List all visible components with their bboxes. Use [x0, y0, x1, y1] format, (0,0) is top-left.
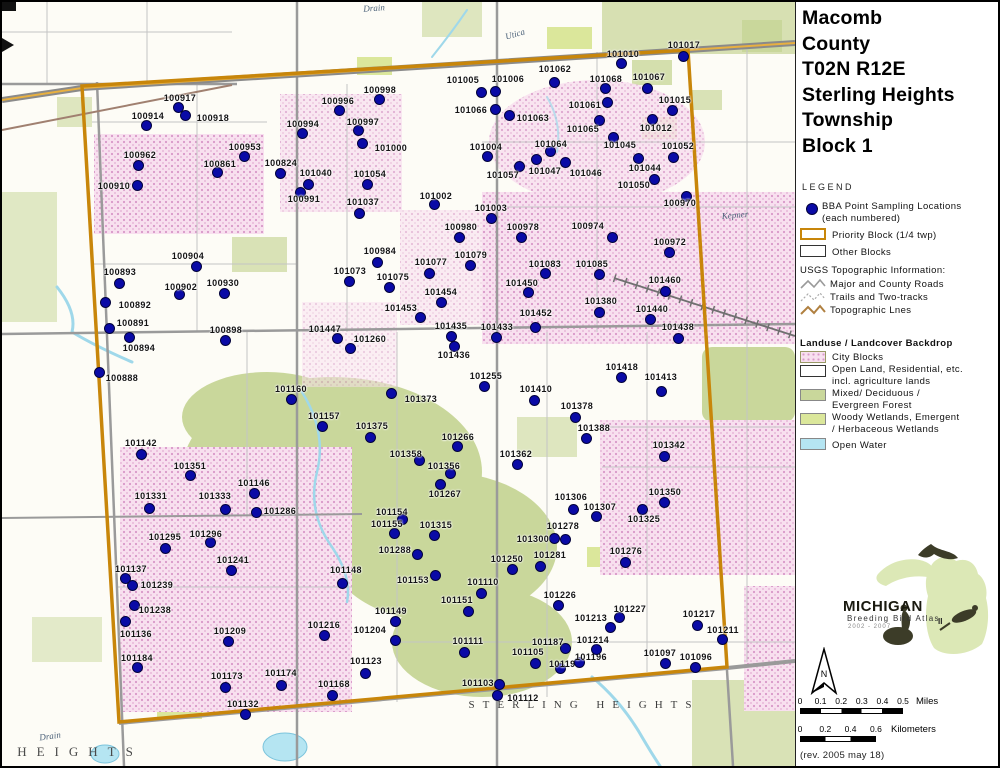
bba-point-dot — [362, 179, 373, 190]
bba-point-label: 100991 — [288, 194, 320, 204]
bba-point-label: 101112 — [507, 693, 538, 703]
bba-point-label: 100970 — [664, 198, 696, 208]
legend-priority-label: Priority Block (1/4 twp) — [832, 230, 937, 242]
bba-point-label: 101413 — [645, 372, 677, 382]
bba-point-label: 101146 — [238, 478, 270, 488]
bba-point-dot — [463, 606, 474, 617]
bba-point-label: 101045 — [604, 140, 636, 150]
bba-point-dot — [144, 503, 155, 514]
bba-point-dot — [226, 565, 237, 576]
bba-point-dot — [504, 110, 515, 121]
bba-point-dot — [136, 449, 147, 460]
scale-tick-label: 0.2 — [835, 696, 847, 706]
bba-point-label: 101216 — [308, 620, 340, 630]
bba-point-label: 101238 — [139, 605, 171, 615]
miles-scale-bar — [800, 708, 903, 714]
bba-point-label: 101450 — [506, 278, 538, 288]
bba-point-dot — [374, 94, 385, 105]
bba-point-label: 100894 — [123, 343, 155, 353]
bba-point-dot — [372, 257, 383, 268]
bba-point-dot — [389, 528, 400, 539]
bba-point-label: 101184 — [121, 653, 153, 663]
bba-point-label: 100980 — [445, 222, 477, 232]
bba-point-dot — [523, 287, 534, 298]
bba-point-label: 101157 — [308, 411, 340, 421]
bba-point-label: 101068 — [590, 74, 622, 84]
bba-point-label: 101433 — [481, 322, 513, 332]
bba-point-label: 100888 — [106, 373, 138, 383]
bba-point-dot — [594, 307, 605, 318]
bba-point-dot — [667, 105, 678, 116]
bba-point-label: 101017 — [668, 40, 700, 50]
bba-point-dot — [120, 573, 131, 584]
bba-point-label: 101373 — [405, 394, 437, 404]
bba-point-label: 101214 — [577, 635, 609, 645]
bba-point-label: 101054 — [354, 169, 386, 179]
topo-lines-icon — [800, 304, 826, 316]
priority-block-swatch — [800, 228, 826, 240]
bba-point-label: 101003 — [475, 203, 507, 213]
legend-open-land: Open Land, Residential, etc. incl. agric… — [832, 364, 963, 387]
pond — [263, 733, 307, 761]
bba-point-dot — [180, 110, 191, 121]
north-arrow: N — [806, 647, 842, 697]
bba-point-dot — [530, 322, 541, 333]
bba-point-label: 100861 — [204, 159, 236, 169]
bba-point-dot — [240, 709, 251, 720]
bba-point-label: 101153 — [397, 575, 429, 585]
bba-point-label: 101447 — [309, 324, 341, 334]
km-scale-bar — [800, 736, 876, 742]
bba-point-label: 101173 — [211, 671, 243, 681]
bba-point-dot — [384, 282, 395, 293]
bba-point-dot — [660, 658, 671, 669]
bba-point-label: 101260 — [354, 334, 386, 344]
bba-point-label: 101288 — [379, 545, 411, 555]
trails-icon — [800, 291, 826, 303]
bba-point-dot — [591, 644, 602, 655]
bba-point-dot — [633, 153, 644, 164]
bba-point-label: 101132 — [227, 699, 259, 709]
bba-point-dot — [535, 561, 546, 572]
bba-point-label: 101333 — [199, 491, 231, 501]
legend-wetland: Woody Wetlands, Emergent / Herbaceous We… — [832, 412, 960, 435]
bba-point-label: 101075 — [377, 272, 409, 282]
bba-point-label: 100984 — [364, 246, 396, 256]
bba-point-dot — [673, 333, 684, 344]
bba-point-label: 100996 — [322, 96, 354, 106]
bba-point-label: 101012 — [640, 123, 672, 133]
bba-point-label: 101061 — [569, 100, 601, 110]
bba-point-dot — [516, 232, 527, 243]
bba-point-dot — [530, 658, 541, 669]
bba-point-dot — [332, 333, 343, 344]
open-water-swatch — [800, 438, 826, 450]
bba-point-dot — [337, 578, 348, 589]
bba-point-dot — [436, 297, 447, 308]
bba-point-label: 101375 — [356, 421, 388, 431]
bba-point-label: 101046 — [570, 168, 602, 178]
bba-point-dot — [616, 372, 627, 383]
bba-point-dot — [327, 690, 338, 701]
bba-point-label: 101151 — [441, 595, 473, 605]
bba-point-dot — [476, 588, 487, 599]
bba-point-dot — [220, 504, 231, 515]
bba-point-label: 101079 — [455, 250, 487, 260]
bba-point-dot — [334, 105, 345, 116]
bba-point-dot — [659, 451, 670, 462]
bba-point-label: 100997 — [347, 117, 379, 127]
bba-point-label: 100902 — [165, 282, 197, 292]
map-area: DrainUticaKepnerDrainSTERLING HEIGHTSHEI… — [2, 2, 795, 766]
bba-point-label: 101160 — [275, 384, 307, 394]
bba-point-label: 100917 — [164, 93, 196, 103]
bba-point-label: 101062 — [539, 64, 571, 74]
scale-tick-label: 0.2 — [819, 724, 831, 734]
bba-point-label: 101209 — [214, 626, 246, 636]
bba-point-dot — [594, 269, 605, 280]
svg-text:N: N — [821, 669, 828, 679]
bba-point-label: 101155 — [371, 519, 403, 529]
bba-point-dot — [219, 288, 230, 299]
legend-bba-line1: BBA Point Sampling Locations — [822, 201, 962, 213]
scale-tick-label: 0.3 — [856, 696, 868, 706]
bba-point-label: 101438 — [662, 322, 694, 332]
bba-point-label: 100893 — [104, 267, 136, 277]
bba-point-dot — [317, 421, 328, 432]
bba-point-label: 101286 — [264, 506, 296, 516]
bba-point-label: 101063 — [517, 113, 549, 123]
sidebar: Macomb County T02N R12E Sterling Heights… — [795, 2, 999, 766]
bba-point-label: 101148 — [330, 565, 362, 575]
bba-point-dot — [482, 151, 493, 162]
map-text-label: HEIGHTS — [17, 744, 143, 760]
bba-point-dot — [659, 497, 670, 508]
bba-point-label: 100914 — [132, 111, 164, 121]
bba-point-label: 101418 — [606, 362, 638, 372]
bba-point-label: 101239 — [141, 580, 173, 590]
bba-point-label: 101331 — [135, 491, 167, 501]
bba-point-label: 100898 — [210, 325, 242, 335]
bba-point-dot — [600, 83, 611, 94]
bba-point-label: 101123 — [350, 656, 382, 666]
title-line: Macomb — [802, 6, 955, 32]
scale-tick-label: 0.5 — [897, 696, 909, 706]
corner-mark — [2, 2, 16, 11]
bba-point-dot — [249, 488, 260, 499]
bba-point-dot — [185, 470, 196, 481]
title-line: County — [802, 32, 955, 58]
city-blocks-swatch — [800, 351, 826, 363]
bba-point-dot — [275, 168, 286, 179]
km-unit: Kilometers — [891, 724, 936, 735]
bba-point-dot — [386, 388, 397, 399]
bba-point-label: 101015 — [659, 95, 691, 105]
bba-point-dot — [465, 260, 476, 271]
bba-point-label: 100953 — [229, 142, 261, 152]
bba-point-dot — [390, 635, 401, 646]
bba-point-dot — [531, 154, 542, 165]
bba-point-dot — [486, 213, 497, 224]
bba-point-label: 101006 — [492, 74, 524, 84]
bba-point-dot — [645, 314, 656, 325]
map-text-label: STERLING HEIGHTS — [469, 699, 700, 711]
bba-point-dot — [120, 616, 131, 627]
bba-point-dot — [549, 77, 560, 88]
bba-point-label: 100824 — [265, 158, 297, 168]
wetland-swatch — [800, 413, 826, 425]
bba-point-label: 101217 — [683, 609, 715, 619]
bba-point-label: 101241 — [217, 555, 249, 565]
bba-point-label: 101204 — [354, 625, 386, 635]
bba-point-label: 100998 — [364, 85, 396, 95]
bba-point-label: 100918 — [197, 113, 229, 123]
bba-point-label: 101452 — [520, 308, 552, 318]
bba-point-label: 101255 — [470, 371, 502, 381]
bba-point-dot — [490, 86, 501, 97]
scale-tick-label: 0.6 — [870, 724, 882, 734]
usgs-heading: USGS Topographic Information: — [800, 265, 946, 277]
logo-numeral: II — [938, 617, 942, 626]
bba-point-dot — [492, 690, 503, 701]
bba-point-label: 101037 — [347, 197, 379, 207]
bba-point-label: 101083 — [529, 259, 561, 269]
forest-swatch — [800, 389, 826, 401]
bba-point-dot — [605, 622, 616, 633]
bba-point-dot — [435, 479, 446, 490]
bba-point-label: 101077 — [415, 257, 447, 267]
bba-point-label: 101435 — [435, 321, 467, 331]
bba-point-label: 101010 — [607, 49, 639, 59]
bba-point-dot — [717, 634, 728, 645]
bba-point-label: 101187 — [532, 637, 564, 647]
bba-point-label: 101064 — [535, 139, 567, 149]
bba-point-label: 101211 — [707, 625, 739, 635]
logo-name: MICHIGAN — [843, 598, 923, 615]
legend-usgs-roads: Major and County Roads — [830, 279, 944, 291]
bba-point-dot — [529, 395, 540, 406]
bba-point-dot — [602, 97, 613, 108]
bba-point-label: 101300 — [517, 534, 549, 544]
legend-usgs-trails: Trails and Two-tracks — [830, 292, 928, 304]
bba-point-label: 101057 — [487, 170, 519, 180]
bba-point-label: 101065 — [567, 124, 599, 134]
legend-open-land-line2: incl. agriculture lands — [832, 376, 963, 388]
legend-city-blocks: City Blocks — [832, 352, 883, 364]
bba-point-dot — [454, 232, 465, 243]
bba-point-dot — [100, 297, 111, 308]
bba-point-dot — [223, 636, 234, 647]
bba-point-dot — [104, 323, 115, 334]
bba-point-dot — [360, 668, 371, 679]
logo-subtitle: Breeding Bird Atlas — [847, 614, 940, 623]
bba-point-dot — [412, 549, 423, 560]
bba-point-label: 101052 — [662, 141, 694, 151]
bba-point-label: 101306 — [555, 492, 587, 502]
bba-point-dot — [459, 647, 470, 658]
other-blocks-swatch — [800, 245, 826, 257]
bba-point-label: 101267 — [429, 489, 461, 499]
michigan-lp-shape — [926, 557, 988, 654]
bba-point-dot — [424, 268, 435, 279]
title-line: Township — [802, 108, 955, 134]
bba-point-dot — [220, 335, 231, 346]
bba-point-label: 101307 — [584, 502, 616, 512]
bba-point-dot — [656, 386, 667, 397]
bba-point-label: 100930 — [207, 278, 239, 288]
bba-point-label: 101296 — [190, 529, 222, 539]
bba-point-label: 101460 — [649, 275, 681, 285]
bba-point-dot — [479, 381, 490, 392]
bba-point-dot — [297, 128, 308, 139]
scale-tick-label: 0.1 — [815, 696, 827, 706]
bba-point-dot — [664, 247, 675, 258]
bba-point-dot — [642, 83, 653, 94]
bba-point-label: 101325 — [628, 514, 660, 524]
bba-point-dot — [490, 104, 501, 115]
bba-point-label: 100904 — [172, 251, 204, 261]
bba-point-label: 101436 — [438, 350, 470, 360]
legend-open-land-line1: Open Land, Residential, etc. — [832, 364, 963, 376]
bba-point-dot — [570, 412, 581, 423]
bba-point-dot — [678, 51, 689, 62]
bba-point-label: 101453 — [385, 303, 417, 313]
bba-point-label: 101149 — [375, 606, 407, 616]
bba-point-label: 101266 — [442, 432, 474, 442]
bba-point-label: 101213 — [575, 613, 607, 623]
bba-point-label: 100978 — [507, 222, 539, 232]
bba-point-dot — [429, 530, 440, 541]
bba-point-label: 101281 — [534, 550, 566, 560]
bba-point-label: 101044 — [629, 163, 661, 173]
bba-point-dot — [132, 662, 143, 673]
bba-point-dot — [660, 286, 671, 297]
bba-point-legend-icon — [806, 203, 818, 215]
bba-point-label: 100892 — [119, 300, 151, 310]
bba-point-label: 101004 — [470, 142, 502, 152]
bba-point-label: 101227 — [614, 604, 646, 614]
bba-point-label: 101005 — [447, 75, 479, 85]
bba-point-dot — [276, 680, 287, 691]
bba-point-dot — [668, 152, 679, 163]
bba-point-label: 101380 — [585, 296, 617, 306]
map-text-label: Drain — [363, 2, 385, 13]
title-line: T02N R12E — [802, 57, 955, 83]
bba-point-dot — [446, 331, 457, 342]
bba-point-label: 101047 — [529, 166, 561, 176]
bba-point-dot — [553, 600, 564, 611]
bba-point-label: 101295 — [149, 532, 181, 542]
bba-point-label: 101067 — [633, 72, 665, 82]
bba-point-label: 101096 — [680, 652, 712, 662]
bba-point-label: 101358 — [390, 449, 422, 459]
bba-point-dot — [616, 58, 627, 69]
bba-point-dot — [476, 87, 487, 98]
bba-point-dot — [286, 394, 297, 405]
bba-point-label: 101000 — [375, 143, 407, 153]
bba-point-label: 101250 — [491, 554, 523, 564]
bba-point-dot — [132, 180, 143, 191]
bba-point-label: 101356 — [428, 461, 460, 471]
legend-wetland-line1: Woody Wetlands, Emergent — [832, 412, 960, 424]
bba-point-label: 101315 — [420, 520, 452, 530]
bba-point-label: 101174 — [265, 668, 297, 678]
major-roads-icon — [800, 278, 826, 290]
bba-point-dot — [512, 459, 523, 470]
bba-point-label: 101066 — [455, 105, 487, 115]
legend-forest-line2: Evergreen Forest — [832, 400, 920, 412]
miles-scale-ticks: 00.10.20.30.40.5 — [796, 696, 999, 708]
bba-point-label: 101196 — [575, 652, 607, 662]
bba-point-label: 101142 — [125, 438, 157, 448]
bba-point-label: 100910 — [98, 181, 130, 191]
bba-point-dot — [220, 682, 231, 693]
bba-point-dot — [357, 138, 368, 149]
bba-point-dot — [607, 232, 618, 243]
title-line: Block 1 — [802, 134, 955, 160]
bba-point-dot — [365, 432, 376, 443]
michigan-up-shape — [876, 559, 934, 586]
bba-point-label: 101137 — [115, 564, 147, 574]
bba-point-dot — [345, 343, 356, 354]
bba-point-dot — [141, 120, 152, 131]
bba-point-dot — [344, 276, 355, 287]
bba-point-dot — [591, 511, 602, 522]
scale-tick-label: 0.4 — [876, 696, 888, 706]
bba-point-label: 101105 — [512, 647, 544, 657]
bba-point-label: 101362 — [500, 449, 532, 459]
scale-tick-label: 0.4 — [845, 724, 857, 734]
bba-point-dot — [114, 278, 125, 289]
legend-wetland-line2: / Herbaceous Wetlands — [832, 424, 960, 436]
legend-forest: Mixed/ Deciduous / Evergreen Forest — [832, 388, 920, 411]
legend-heading: LEGEND — [802, 182, 854, 192]
revision-note: (rev. 2005 may 18) — [800, 750, 884, 761]
bba-point-dot — [124, 332, 135, 343]
bba-point-dot — [390, 616, 401, 627]
bba-point-label: 100972 — [654, 237, 686, 247]
bba-point-dot — [494, 679, 505, 690]
bba-point-dot — [430, 570, 441, 581]
miles-unit: Miles — [916, 696, 938, 707]
bba-point-label: 101168 — [318, 679, 350, 689]
bba-point-label: 100962 — [124, 150, 156, 160]
bba-point-label: 101154 — [376, 507, 408, 517]
landuse-heading: Landuse / Landcover Backdrop — [800, 338, 953, 350]
bba-point-dot — [354, 208, 365, 219]
bba-point-label: 101410 — [520, 384, 552, 394]
page-title: Macomb County T02N R12E Sterling Heights… — [802, 6, 955, 159]
edge-arrow — [2, 38, 14, 52]
bba-point-dot — [620, 557, 631, 568]
bba-point-dot — [319, 630, 330, 641]
bba-point-dot — [581, 433, 592, 444]
bba-point-label: 101276 — [610, 546, 642, 556]
bba-point-dot — [690, 662, 701, 673]
title-line: Sterling Heights — [802, 83, 955, 109]
bba-point-label: 100974 — [572, 221, 604, 231]
bba-point-dot — [491, 332, 502, 343]
legend-open-water: Open Water — [832, 440, 887, 452]
bba-point-dot — [692, 620, 703, 631]
scale-tick-label: 0 — [798, 696, 803, 706]
bba-point-label: 101440 — [636, 304, 668, 314]
bba-point-dot — [415, 312, 426, 323]
bba-point-label: 101002 — [420, 191, 452, 201]
bba-point-dot — [637, 504, 648, 515]
bba-point-dot — [160, 543, 171, 554]
bba-point-label: 101378 — [561, 401, 593, 411]
